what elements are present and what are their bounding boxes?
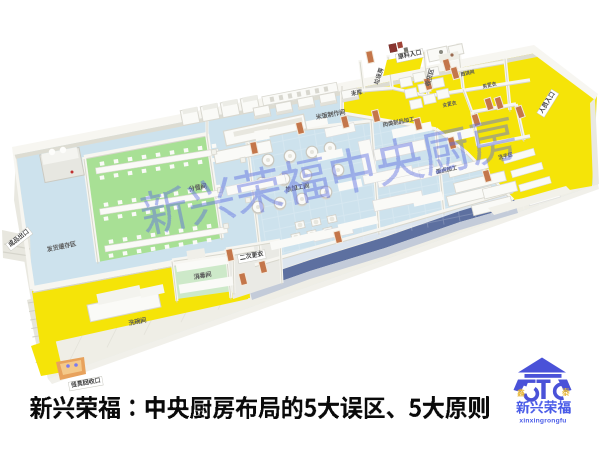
- svg-text:xinxingrongfu: xinxingrongfu: [519, 418, 566, 425]
